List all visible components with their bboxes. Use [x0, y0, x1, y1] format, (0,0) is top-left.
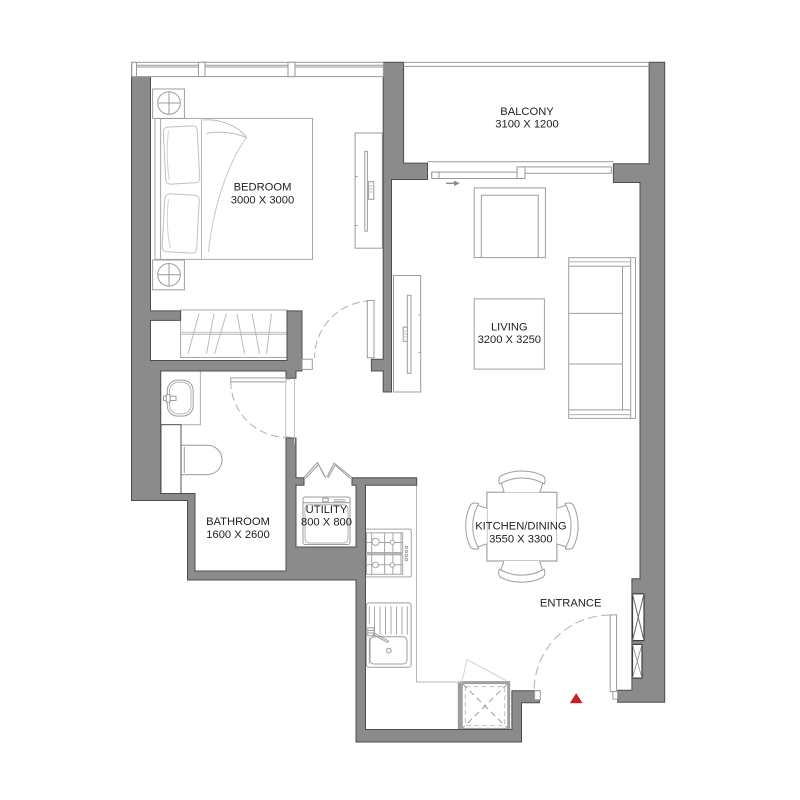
svg-text:BALCONY: BALCONY: [500, 106, 554, 118]
svg-text:LIVING: LIVING: [491, 321, 528, 333]
svg-text:3550 X 3300: 3550 X 3300: [489, 533, 552, 545]
svg-text:3000 X 3000: 3000 X 3000: [231, 194, 294, 206]
svg-text:3200 X 3250: 3200 X 3250: [478, 334, 541, 346]
svg-text:800 X 800: 800 X 800: [301, 517, 352, 529]
svg-text:ENTRANCE: ENTRANCE: [540, 597, 602, 609]
svg-text:1600 X 2600: 1600 X 2600: [206, 529, 269, 541]
svg-text:BEDROOM: BEDROOM: [234, 182, 292, 194]
svg-text:BATHROOM: BATHROOM: [206, 516, 270, 528]
svg-text:KITCHEN/DINING: KITCHEN/DINING: [475, 521, 566, 533]
svg-text:UTILITY: UTILITY: [306, 504, 348, 516]
svg-text:3100 X 1200: 3100 X 1200: [495, 119, 558, 131]
